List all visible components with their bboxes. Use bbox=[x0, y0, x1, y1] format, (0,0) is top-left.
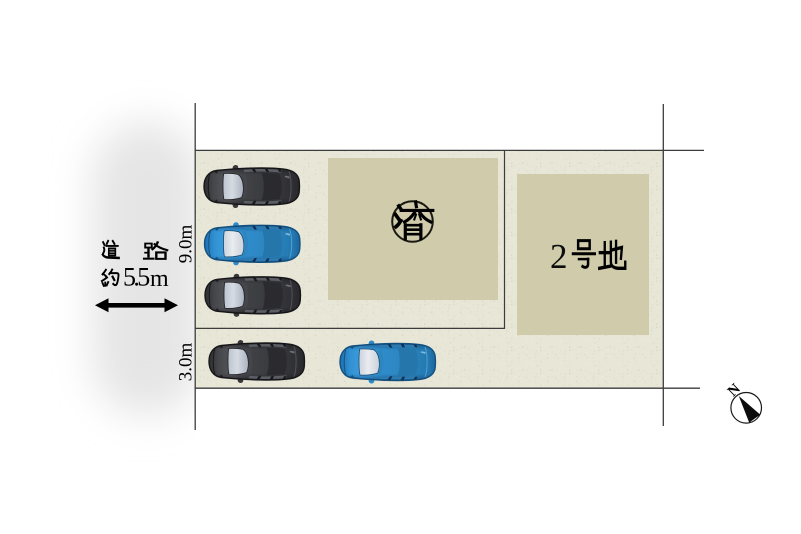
svg-text:9.0m: 9.0m bbox=[176, 225, 197, 264]
svg-text:m: m bbox=[150, 266, 169, 292]
svg-text:3.0m: 3.0m bbox=[176, 343, 197, 382]
svg-text:2: 2 bbox=[550, 237, 568, 276]
svg-text:5.5: 5.5 bbox=[123, 263, 149, 292]
